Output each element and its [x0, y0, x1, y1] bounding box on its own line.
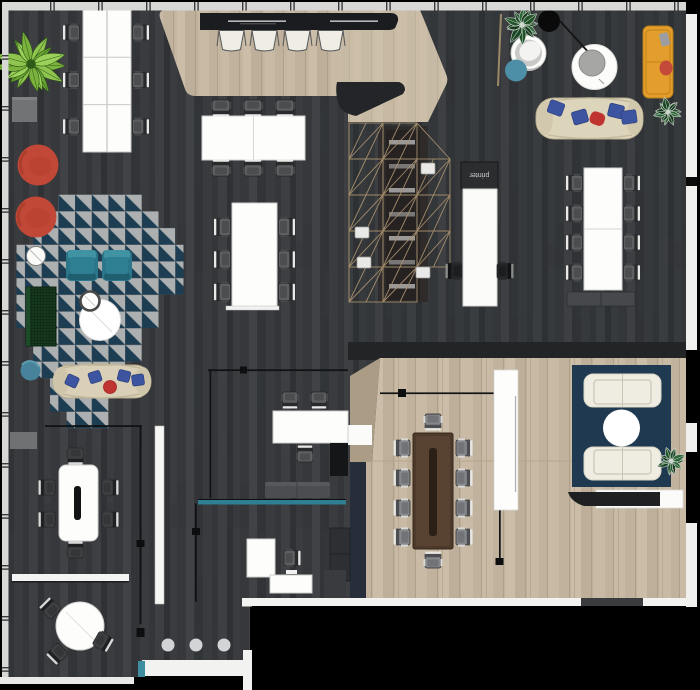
svg-text:printer: printer	[469, 171, 490, 178]
